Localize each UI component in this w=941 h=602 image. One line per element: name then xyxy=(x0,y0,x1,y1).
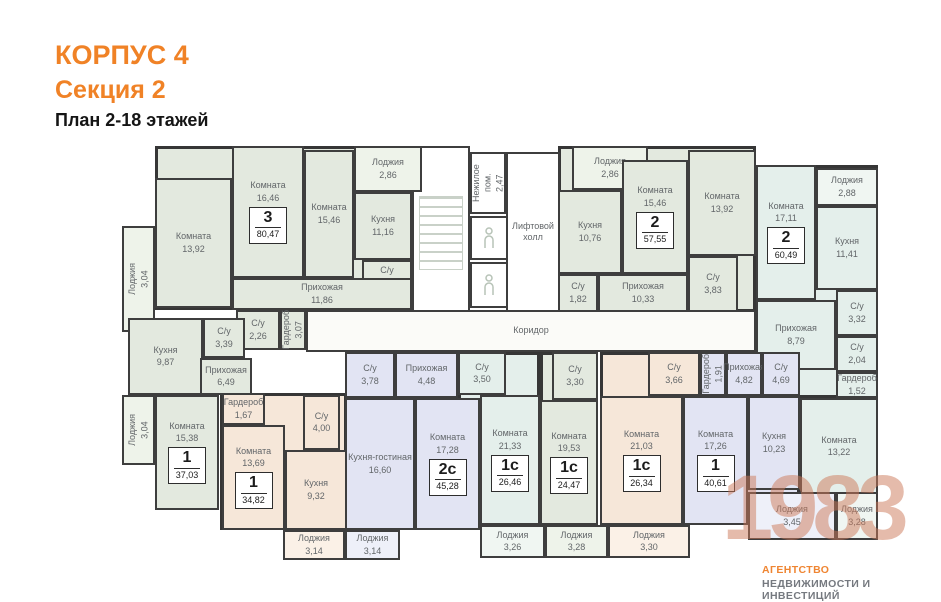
room: Комната16,46380,47 xyxy=(232,146,304,278)
person-icon xyxy=(483,274,495,296)
room-label: Лоджия3,28 xyxy=(561,530,593,554)
room: Кухня10,76 xyxy=(558,190,622,274)
room-label: Лоджия3,04 xyxy=(127,263,151,295)
elevator xyxy=(470,262,508,308)
room: Комната13,69134,82 xyxy=(222,425,285,530)
room: С/у3,50 xyxy=(458,352,506,395)
room-label: Комната15,46 xyxy=(637,185,672,209)
lift-hall: Лифтовой холл xyxy=(506,152,560,312)
room-label: С/у3,78 xyxy=(361,363,379,387)
room: С/у1,82 xyxy=(558,274,598,312)
watermark-year: 1983 xyxy=(722,462,903,554)
apartment-badge: 137,03 xyxy=(168,447,206,484)
room-label: Лоджия2,88 xyxy=(831,175,863,199)
stairs-icon xyxy=(419,196,463,270)
room-label: Комната17,11 xyxy=(768,201,803,225)
room-label: Кухня9,32 xyxy=(304,478,328,502)
corridor: Коридор xyxy=(306,310,756,352)
room: Гардероб1,67 xyxy=(222,393,265,425)
room-label: Гардероб1,67 xyxy=(224,397,264,421)
room: Кухня11,16 xyxy=(354,192,412,260)
room-label: Прихожая11,86 xyxy=(301,282,343,306)
apartment-badge: 380,47 xyxy=(249,207,287,244)
room: С/у3,39 xyxy=(203,318,245,358)
room-label: Комната13,69 xyxy=(236,446,271,470)
room: Гардероб1,91 xyxy=(700,352,726,396)
room: С/у3,32 xyxy=(836,290,878,336)
room: Комната17,282с45,28 xyxy=(415,398,480,530)
non-residential-room: Нежилое пом.2,47 xyxy=(470,152,506,214)
room: С/у4,00 xyxy=(303,395,340,450)
room-label: Комната21,33 xyxy=(492,428,527,452)
room-label: С/у3,83 xyxy=(704,272,722,296)
room: С/у2,04 xyxy=(836,336,878,372)
watermark-agency-name: АГЕНТСТВО xyxy=(762,564,829,576)
room-label: Комната16,46 xyxy=(250,180,285,204)
room: Прихожая4,48 xyxy=(395,352,458,398)
room-label: Лоджия3,14 xyxy=(357,533,389,557)
room: Прихожая4,82 xyxy=(726,352,762,396)
room: Комната19,531с24,47 xyxy=(540,400,598,525)
watermark-agency-tagline: НЕДВИЖИМОСТИ И ИНВЕСТИЦИЙ xyxy=(762,578,941,602)
room: Комната13,92 xyxy=(688,150,756,256)
room-label: Прихожая8,79 xyxy=(775,323,817,347)
room-label: Комната13,92 xyxy=(176,231,211,255)
room-label: Комната17,26 xyxy=(698,429,733,453)
room: Гардероб3,07 xyxy=(280,310,306,350)
apartment-badge: 1с24,47 xyxy=(550,457,588,494)
room-label: Прихожая4,48 xyxy=(406,363,448,387)
room: С/у3,66 xyxy=(648,352,700,396)
room-label: С/у2,26 xyxy=(249,318,267,342)
room-label: Лоджия3,14 xyxy=(298,533,330,557)
room: Комната15,38137,03 xyxy=(155,395,219,510)
room-label: Гардероб1,91 xyxy=(701,354,725,394)
room-label: Лоджия3,04 xyxy=(127,414,151,446)
loggia: Лоджия3,30 xyxy=(608,525,690,558)
room-label: Гардероб3,07 xyxy=(281,310,305,350)
room-label: Кухня9,87 xyxy=(153,345,177,369)
apartment-badge: 1с26,46 xyxy=(491,455,529,492)
room-label: Лоджия3,30 xyxy=(633,530,665,554)
loggia: Лоджия3,26 xyxy=(480,525,545,558)
room-label: Кухня10,76 xyxy=(578,220,602,244)
room-label: Комната15,38 xyxy=(169,421,204,445)
room-label: Комната19,53 xyxy=(551,431,586,455)
room-label: Прихожая6,49 xyxy=(205,365,247,389)
room-label: Лоджия3,26 xyxy=(497,530,529,554)
apartment-badge: 1с26,34 xyxy=(623,455,661,492)
room: Комната21,031с26,34 xyxy=(600,396,683,525)
loggia: Лоджия2,86 xyxy=(354,146,422,192)
room: Комната17,11260,49 xyxy=(756,165,816,300)
apartment-badge: 260,49 xyxy=(767,227,805,264)
room: Прихожая11,86 xyxy=(232,278,412,310)
room-label: С/у3,39 xyxy=(215,326,233,350)
room-label: Лифтовой холл xyxy=(508,221,558,244)
room: Комната15,46257,55 xyxy=(622,160,688,274)
room-label: Прихожая4,82 xyxy=(723,362,765,386)
room-label: Гардероб1,52 xyxy=(837,373,877,397)
room: Кухня9,87 xyxy=(128,318,203,395)
room-label: Комната21,03 xyxy=(624,429,659,453)
apartment-badge: 257,55 xyxy=(636,212,674,249)
room-label: С/у1,82 xyxy=(569,281,587,305)
room: С/у4,69 xyxy=(762,352,800,396)
room-label: С/у4,69 xyxy=(772,362,790,386)
person-icon xyxy=(483,227,495,249)
room-label: Кухня11,41 xyxy=(835,236,859,260)
room: Комната15,46 xyxy=(304,150,354,278)
room-label: Нежилое пом.2,47 xyxy=(471,154,506,212)
loggia: Лоджия2,88 xyxy=(816,168,878,206)
room-label: Кухня10,23 xyxy=(762,431,786,455)
room-label: Комната15,46 xyxy=(311,202,346,226)
room-label: Комната13,92 xyxy=(704,191,739,215)
room-label: Кухня11,16 xyxy=(371,214,395,238)
room-label: С/у3,32 xyxy=(848,301,866,325)
room: Комната21,331с26,46 xyxy=(480,395,540,525)
room-label: Комната13,22 xyxy=(821,435,856,459)
room-label: С/у2,04 xyxy=(848,342,866,366)
room: Комната13,92 xyxy=(155,178,232,308)
room: С/у3,30 xyxy=(552,352,598,400)
room-label: Коридор xyxy=(513,325,549,336)
apartment-badge: 2с45,28 xyxy=(429,459,467,496)
room: Кухня11,41 xyxy=(816,206,878,290)
room: Кухня9,32 xyxy=(285,450,347,530)
loggia: Лоджия3,04 xyxy=(122,226,155,332)
room: Гардероб1,52 xyxy=(836,372,878,398)
room-label: С/у4,00 xyxy=(313,411,331,435)
room-label: С/у3,50 xyxy=(473,362,491,386)
room-label: Прихожая10,33 xyxy=(622,281,664,305)
room-label: Комната17,28 xyxy=(430,432,465,456)
room-label: С/у3,66 xyxy=(665,362,683,386)
room: С/у3,78 xyxy=(345,352,395,398)
room: Кухня-гостиная16,60 xyxy=(345,398,415,530)
room-label: Кухня-гостиная16,60 xyxy=(348,452,412,476)
loggia: Лоджия3,14 xyxy=(345,530,400,560)
room-label: С/у3,30 xyxy=(566,364,584,388)
apartment-badge: 134,82 xyxy=(235,472,273,509)
room: С/у3,83 xyxy=(688,256,738,312)
room: Прихожая6,49 xyxy=(200,358,252,395)
loggia: Лоджия3,28 xyxy=(545,525,608,558)
loggia: Лоджия3,14 xyxy=(283,530,345,560)
room: Прихожая10,33 xyxy=(598,274,688,312)
elevator xyxy=(470,216,508,260)
loggia: Лоджия3,04 xyxy=(122,395,155,465)
room-label: Лоджия2,86 xyxy=(372,157,404,181)
